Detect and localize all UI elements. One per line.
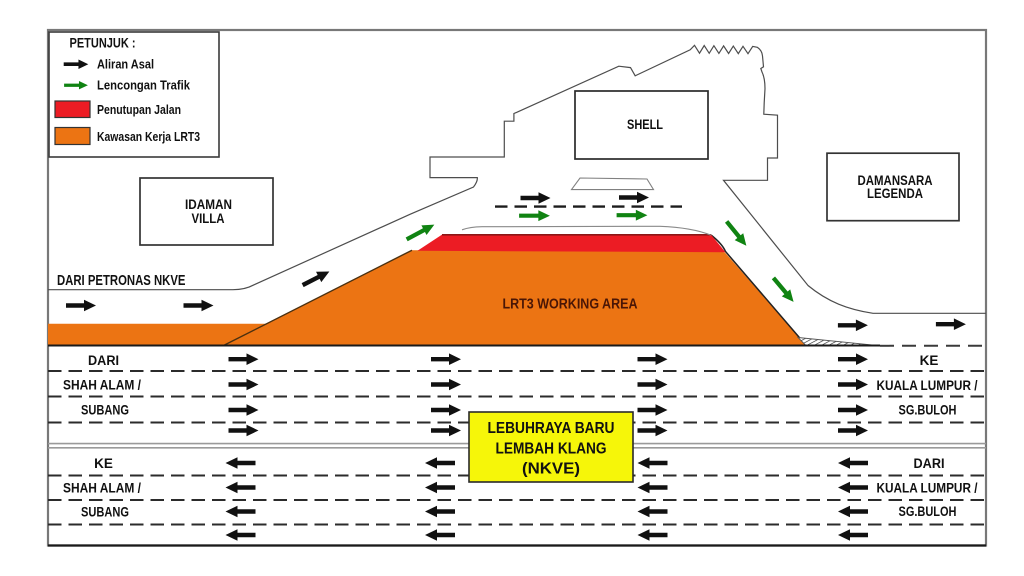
svg-text:LEGENDA: LEGENDA xyxy=(867,186,923,201)
svg-text:KE: KE xyxy=(920,353,939,368)
svg-text:SG.BULOH: SG.BULOH xyxy=(899,402,957,417)
svg-text:Penutupan Jalan: Penutupan Jalan xyxy=(97,102,181,117)
svg-text:DARI PETRONAS NKVE: DARI PETRONAS NKVE xyxy=(57,272,186,289)
svg-text:DARI: DARI xyxy=(88,353,119,368)
svg-text:DARI: DARI xyxy=(914,456,945,471)
svg-text:SHAH ALAM /: SHAH ALAM / xyxy=(63,377,141,392)
svg-text:LEBUHRAYA BARU: LEBUHRAYA BARU xyxy=(488,420,615,437)
svg-text:LEMBAH KLANG: LEMBAH KLANG xyxy=(496,441,607,458)
svg-text:Lencongan Trafik: Lencongan Trafik xyxy=(97,78,191,93)
svg-text:VILLA: VILLA xyxy=(192,211,225,226)
svg-text:SHAH ALAM /: SHAH ALAM / xyxy=(63,480,141,495)
svg-text:PETUNJUK :: PETUNJUK : xyxy=(70,36,136,51)
svg-text:SHELL: SHELL xyxy=(627,117,663,132)
svg-text:KE: KE xyxy=(94,456,113,471)
svg-text:KUALA LUMPUR /: KUALA LUMPUR / xyxy=(877,480,978,495)
svg-text:(NKVE): (NKVE) xyxy=(522,461,580,478)
svg-text:Aliran Asal: Aliran Asal xyxy=(97,57,154,72)
svg-text:SUBANG: SUBANG xyxy=(81,403,129,418)
svg-text:KUALA LUMPUR /: KUALA LUMPUR / xyxy=(877,378,978,393)
svg-text:Kawasan Kerja LRT3: Kawasan Kerja LRT3 xyxy=(97,129,200,144)
svg-text:SG.BULOH: SG.BULOH xyxy=(899,504,957,519)
svg-text:SUBANG: SUBANG xyxy=(81,504,129,519)
svg-text:LRT3 WORKING AREA: LRT3 WORKING AREA xyxy=(503,296,638,313)
